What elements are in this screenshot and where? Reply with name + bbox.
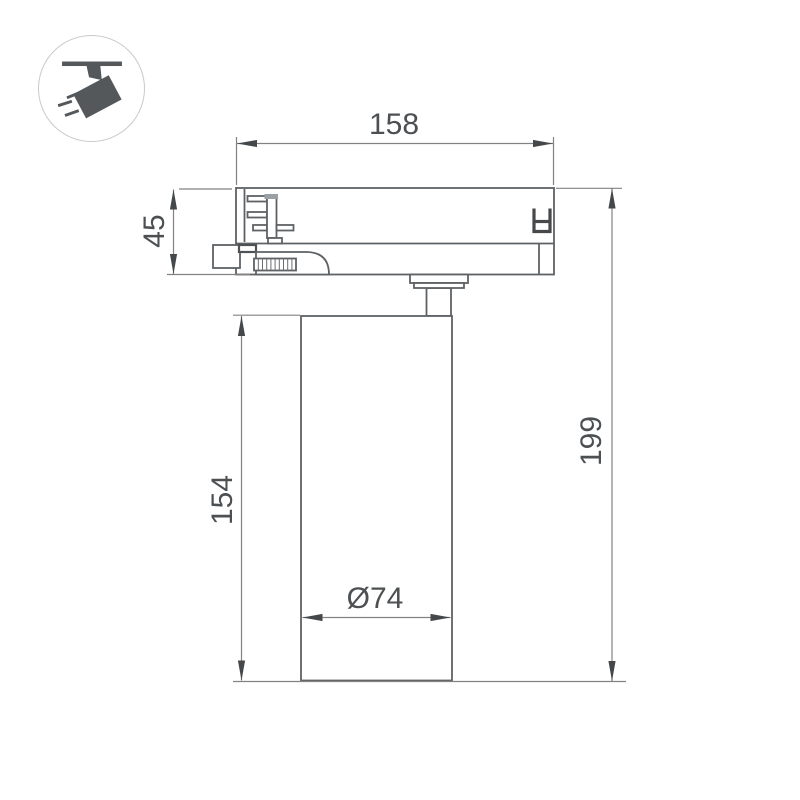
dim-label-body-height: 154 [206,475,239,525]
ribbed-grip [254,259,296,271]
arrowhead [237,140,257,147]
neck-flange-upper [410,275,468,284]
arrowhead [238,316,245,336]
latch-step [239,245,256,252]
pin-tbar [277,225,294,231]
arrowhead [608,661,615,681]
dimension-total-height: 199 [556,188,622,681]
pin-prong-3 [253,225,267,231]
arrowhead [533,140,553,147]
latch-lever [213,245,240,268]
pin-post [267,198,277,238]
technical-drawing: 158 45 154 199 [0,0,800,800]
dim-label-diameter: Ø74 [347,582,404,615]
pin-foot [268,238,282,244]
arrowhead [170,254,177,274]
arrowhead [170,190,177,210]
arrowhead [238,661,245,681]
dim-label-adapter-height: 45 [138,214,171,247]
dimension-width: 158 [237,108,554,185]
pin-prong-2 [248,212,268,218]
pivot-neck [410,275,468,317]
pin-cap [265,194,279,199]
dim-label-total-height: 199 [575,416,608,466]
track-adapter [213,188,554,275]
arrowhead [608,189,615,209]
technical-drawing-page: 158 45 154 199 [0,0,800,800]
dim-label-width: 158 [369,108,419,141]
neck-stem [427,288,452,316]
lamp-cylinder [301,316,452,681]
neck-flange-lower [414,283,464,288]
pin-prong-1 [248,196,268,202]
